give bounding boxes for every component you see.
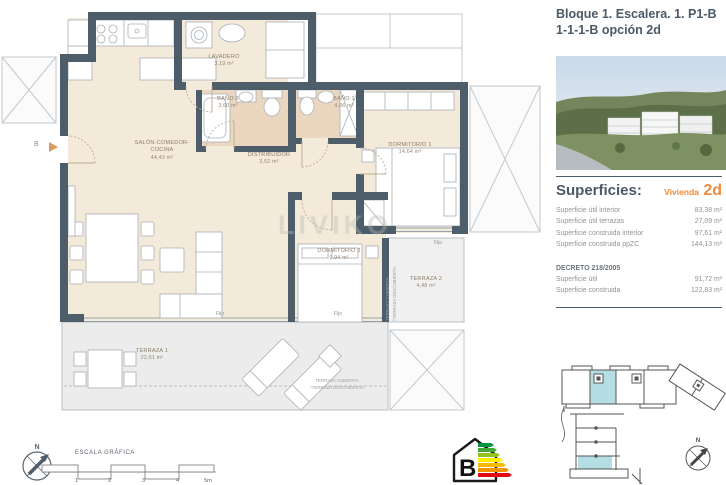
coffee-table [160, 248, 184, 272]
room-label-dormitorio1: DORMITORIO 1 14,64 m² [380, 142, 440, 156]
surface-row: Superficie construida ppZC 144,13 m² [556, 239, 722, 250]
fijo-label: Fijo [434, 240, 442, 246]
room-label-distribuidor: DISTRIBUIDOR 3,52 m² [240, 152, 298, 166]
dining-table [70, 214, 154, 284]
terrace1-notes: TERRAZA CUBIERTA *TERRAZA DESCUBIERTA [295, 378, 379, 391]
room-label-dormitorio2: DORMITORIO 2 9,94 m² [310, 248, 368, 262]
surface-row: Superficie útil interior 83,38 m² [556, 205, 722, 216]
terrace2-note-covered: TERRAZA CUBIERTA [385, 278, 390, 321]
terrace2-note-uncovered: *TERRAZA DESCUBIERTA [392, 267, 397, 321]
key-plan-block [562, 366, 676, 408]
energy-rating-icon: B [448, 434, 520, 484]
sheet-title-line2: 1-1-1-B opción 2d [556, 22, 726, 38]
scale-tick: 4 [176, 478, 179, 484]
building-render-photo [556, 56, 726, 170]
key-plan-section [561, 406, 642, 484]
key-plan-rotated-block [669, 364, 725, 410]
room-label-bano2: BAÑO 2 3,60 m² [206, 96, 250, 110]
scale-tick: 3 [142, 478, 145, 484]
key-plans: N [552, 350, 726, 485]
svg-text:N: N [34, 444, 39, 451]
tv-unit [68, 186, 75, 236]
room-label-salon: SALÓN-COMEDOR-COCINA 44,43 m² [134, 140, 190, 161]
scale-tick: 5m [204, 478, 212, 484]
room-label-bano1: BAÑO 1 4,06 m² [322, 96, 366, 110]
scale-bar [40, 460, 220, 480]
superficies-heading: Superficies: [556, 182, 642, 199]
sheet-title: Bloque 1. Escalera. 1. P1-B 1-1-1-B opci… [556, 6, 726, 39]
vivienda-badge: Vivienda 2d [664, 182, 722, 200]
surface-row: Superficie útil terrazas 27,09 m² [556, 216, 722, 227]
bathroom2-toilet [262, 90, 282, 116]
decreto-heading: DECRETO 218/2005 [556, 263, 722, 274]
nightstand-1a [362, 150, 374, 162]
superficies-header: Superficies: Vivienda 2d [556, 182, 722, 200]
stair-core-outline [316, 14, 462, 84]
scale-tick: 2 [108, 478, 111, 484]
floor-plan-drawing [0, 0, 545, 485]
wardrobe-1 [362, 92, 454, 110]
superficies-panel: Superficies: Vivienda 2d Superficie útil… [556, 176, 722, 308]
svg-text:N: N [696, 437, 701, 444]
closet [266, 22, 304, 78]
page: LAVADERO 3,19 m² BAÑO 2 3,60 m² BAÑO 1 4… [0, 0, 726, 485]
scale-tick: 1 [75, 478, 78, 484]
scale-label: ESCALA GRÁFICA [45, 450, 165, 456]
entry-arrow-icon [49, 142, 58, 152]
surface-row: Superficie construida 122,83 m² [556, 285, 722, 296]
room-label-terraza1: TERRAZA 1 22,61 m² [124, 348, 180, 362]
energy-rating-letter: B [459, 455, 476, 482]
entry-label: B [34, 141, 39, 148]
fijo-label: Fijo [216, 311, 224, 317]
surface-row: Superficie construida interior 97,61 m² [556, 228, 722, 239]
energy-scale-bars [478, 443, 512, 477]
room-label-lavadero: LAVADERO 3,19 m² [196, 54, 252, 68]
fijo-label: Fijo [334, 311, 342, 317]
sheet-title-line1: Bloque 1. Escalera. 1. P1-B [556, 6, 726, 22]
surface-row: Superficie útil 91,72 m² [556, 274, 722, 285]
north-compass-small-icon: N [686, 437, 710, 470]
watermark: LIVIKO [278, 210, 392, 241]
room-label-terraza2: TERRAZA 2 4,48 m² [402, 276, 450, 290]
